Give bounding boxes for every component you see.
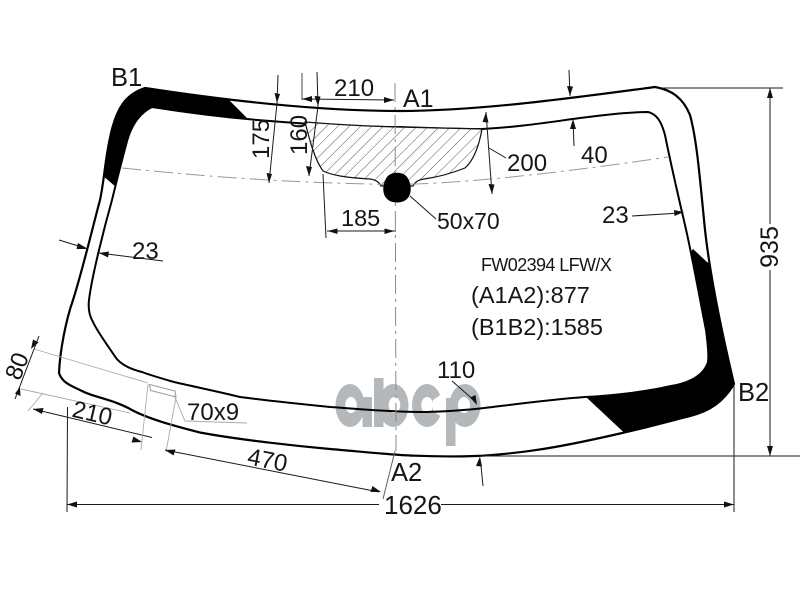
svg-text:210: 210 <box>334 75 374 102</box>
svg-text:185: 185 <box>341 205 380 231</box>
svg-text:935: 935 <box>756 226 784 268</box>
svg-text:175: 175 <box>248 119 275 159</box>
svg-text:B1: B1 <box>111 64 142 92</box>
svg-text:1626: 1626 <box>384 490 442 520</box>
svg-text:(B1B2):1585: (B1B2):1585 <box>471 314 603 340</box>
svg-text:23: 23 <box>602 202 629 229</box>
svg-text:200: 200 <box>507 150 547 177</box>
svg-text:23: 23 <box>132 238 159 265</box>
svg-text:A2: A2 <box>391 459 422 487</box>
svg-text:110: 110 <box>437 357 475 384</box>
svg-text:50x70: 50x70 <box>437 208 500 234</box>
svg-text:A1: A1 <box>403 85 434 113</box>
svg-text:160: 160 <box>286 115 313 155</box>
svg-text:40: 40 <box>581 142 608 169</box>
svg-text:B2: B2 <box>738 379 769 407</box>
svg-text:70x9: 70x9 <box>187 399 239 426</box>
svg-text:(A1A2):877: (A1A2):877 <box>471 282 590 308</box>
svg-text:FW02394 LFW/X: FW02394 LFW/X <box>481 255 612 275</box>
